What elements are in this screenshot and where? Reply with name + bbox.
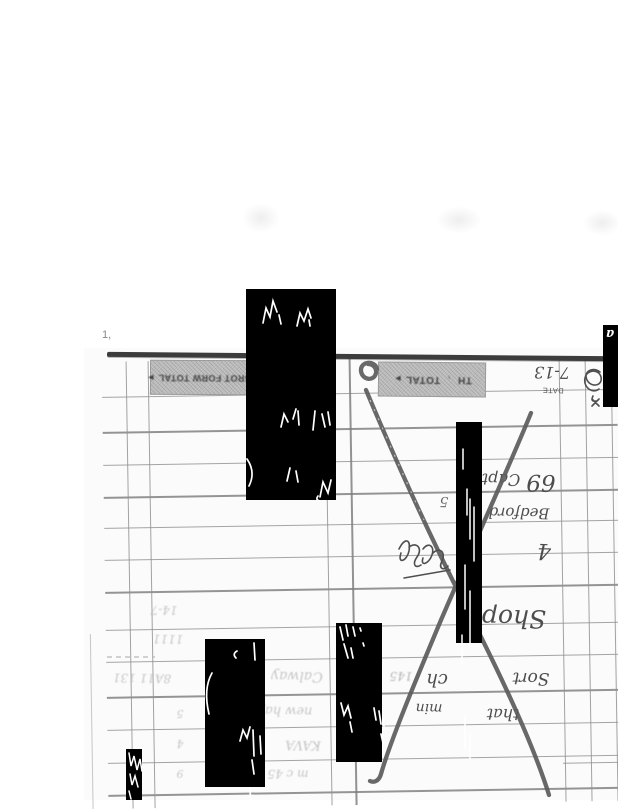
arrow-right-icon: ► bbox=[392, 374, 402, 384]
scan-smudge bbox=[436, 206, 482, 234]
total-day-band: TH , TOTAL ► bbox=[378, 362, 486, 398]
handwriting-number: 69 bbox=[522, 463, 561, 502]
total-label: TOTAL bbox=[405, 374, 440, 385]
grid-row bbox=[108, 787, 618, 797]
handwriting-word: ch bbox=[424, 665, 451, 695]
redaction-box bbox=[246, 289, 336, 500]
scan-smudge bbox=[242, 203, 280, 233]
page-mark: 1, bbox=[102, 329, 111, 341]
handwriting-word: Bedford bbox=[478, 497, 561, 528]
scan-smudge bbox=[583, 210, 618, 236]
faint-pencil-digit: 9 bbox=[172, 765, 188, 783]
handwriting-word: that bbox=[484, 699, 523, 732]
faint-pencil-text: 14-7 bbox=[146, 600, 182, 621]
redaction-box bbox=[205, 639, 265, 787]
faint-pencil-text: 145 bbox=[388, 667, 414, 685]
grid-row bbox=[105, 584, 618, 594]
faint-pencil-text: 1111 bbox=[150, 629, 186, 650]
faint-pencil-digit: 4 bbox=[172, 735, 188, 753]
faint-pencil-text: 8A11 131 bbox=[110, 666, 174, 689]
redaction-box bbox=[126, 749, 142, 800]
arrow-right-icon: ► bbox=[146, 372, 155, 382]
faint-pencil-digit: 5 bbox=[172, 705, 188, 723]
redaction-box bbox=[336, 623, 382, 762]
date-value-handwritten: 7-13 bbox=[532, 360, 572, 387]
degraded-mark: , bbox=[447, 374, 450, 385]
grid-col bbox=[90, 634, 94, 809]
faint-pencil-text: m c 45 bbox=[262, 763, 314, 786]
day-header-th: TH bbox=[457, 374, 471, 385]
grid-row bbox=[103, 424, 618, 434]
scanned-ledger-screenshot: { "document": { "kind": "scanned handwri… bbox=[0, 0, 618, 800]
handwriting-number: 5 bbox=[435, 489, 453, 513]
handwriting-word: Sort bbox=[507, 662, 556, 695]
faint-pencil-text: Calway bbox=[266, 662, 328, 689]
handwriting-word: Capt bbox=[483, 463, 520, 498]
brot-forw-total-band: BROT FORW TOTAL ► bbox=[150, 360, 248, 396]
faint-dash-row bbox=[107, 656, 155, 658]
date-label: DATE bbox=[540, 385, 566, 396]
brot-forw-total-label: BROT FORW TOTAL bbox=[159, 372, 252, 382]
grid-col bbox=[126, 362, 134, 809]
handwriting-number: 4 bbox=[530, 531, 559, 571]
redaction-white-glyph: a bbox=[602, 326, 618, 342]
redaction-box bbox=[456, 422, 482, 643]
grid-col bbox=[148, 361, 156, 808]
handwriting-word: Shop bbox=[486, 597, 543, 642]
handwriting-word: min bbox=[411, 697, 447, 720]
faint-pencil-text: KAVA bbox=[276, 734, 330, 757]
